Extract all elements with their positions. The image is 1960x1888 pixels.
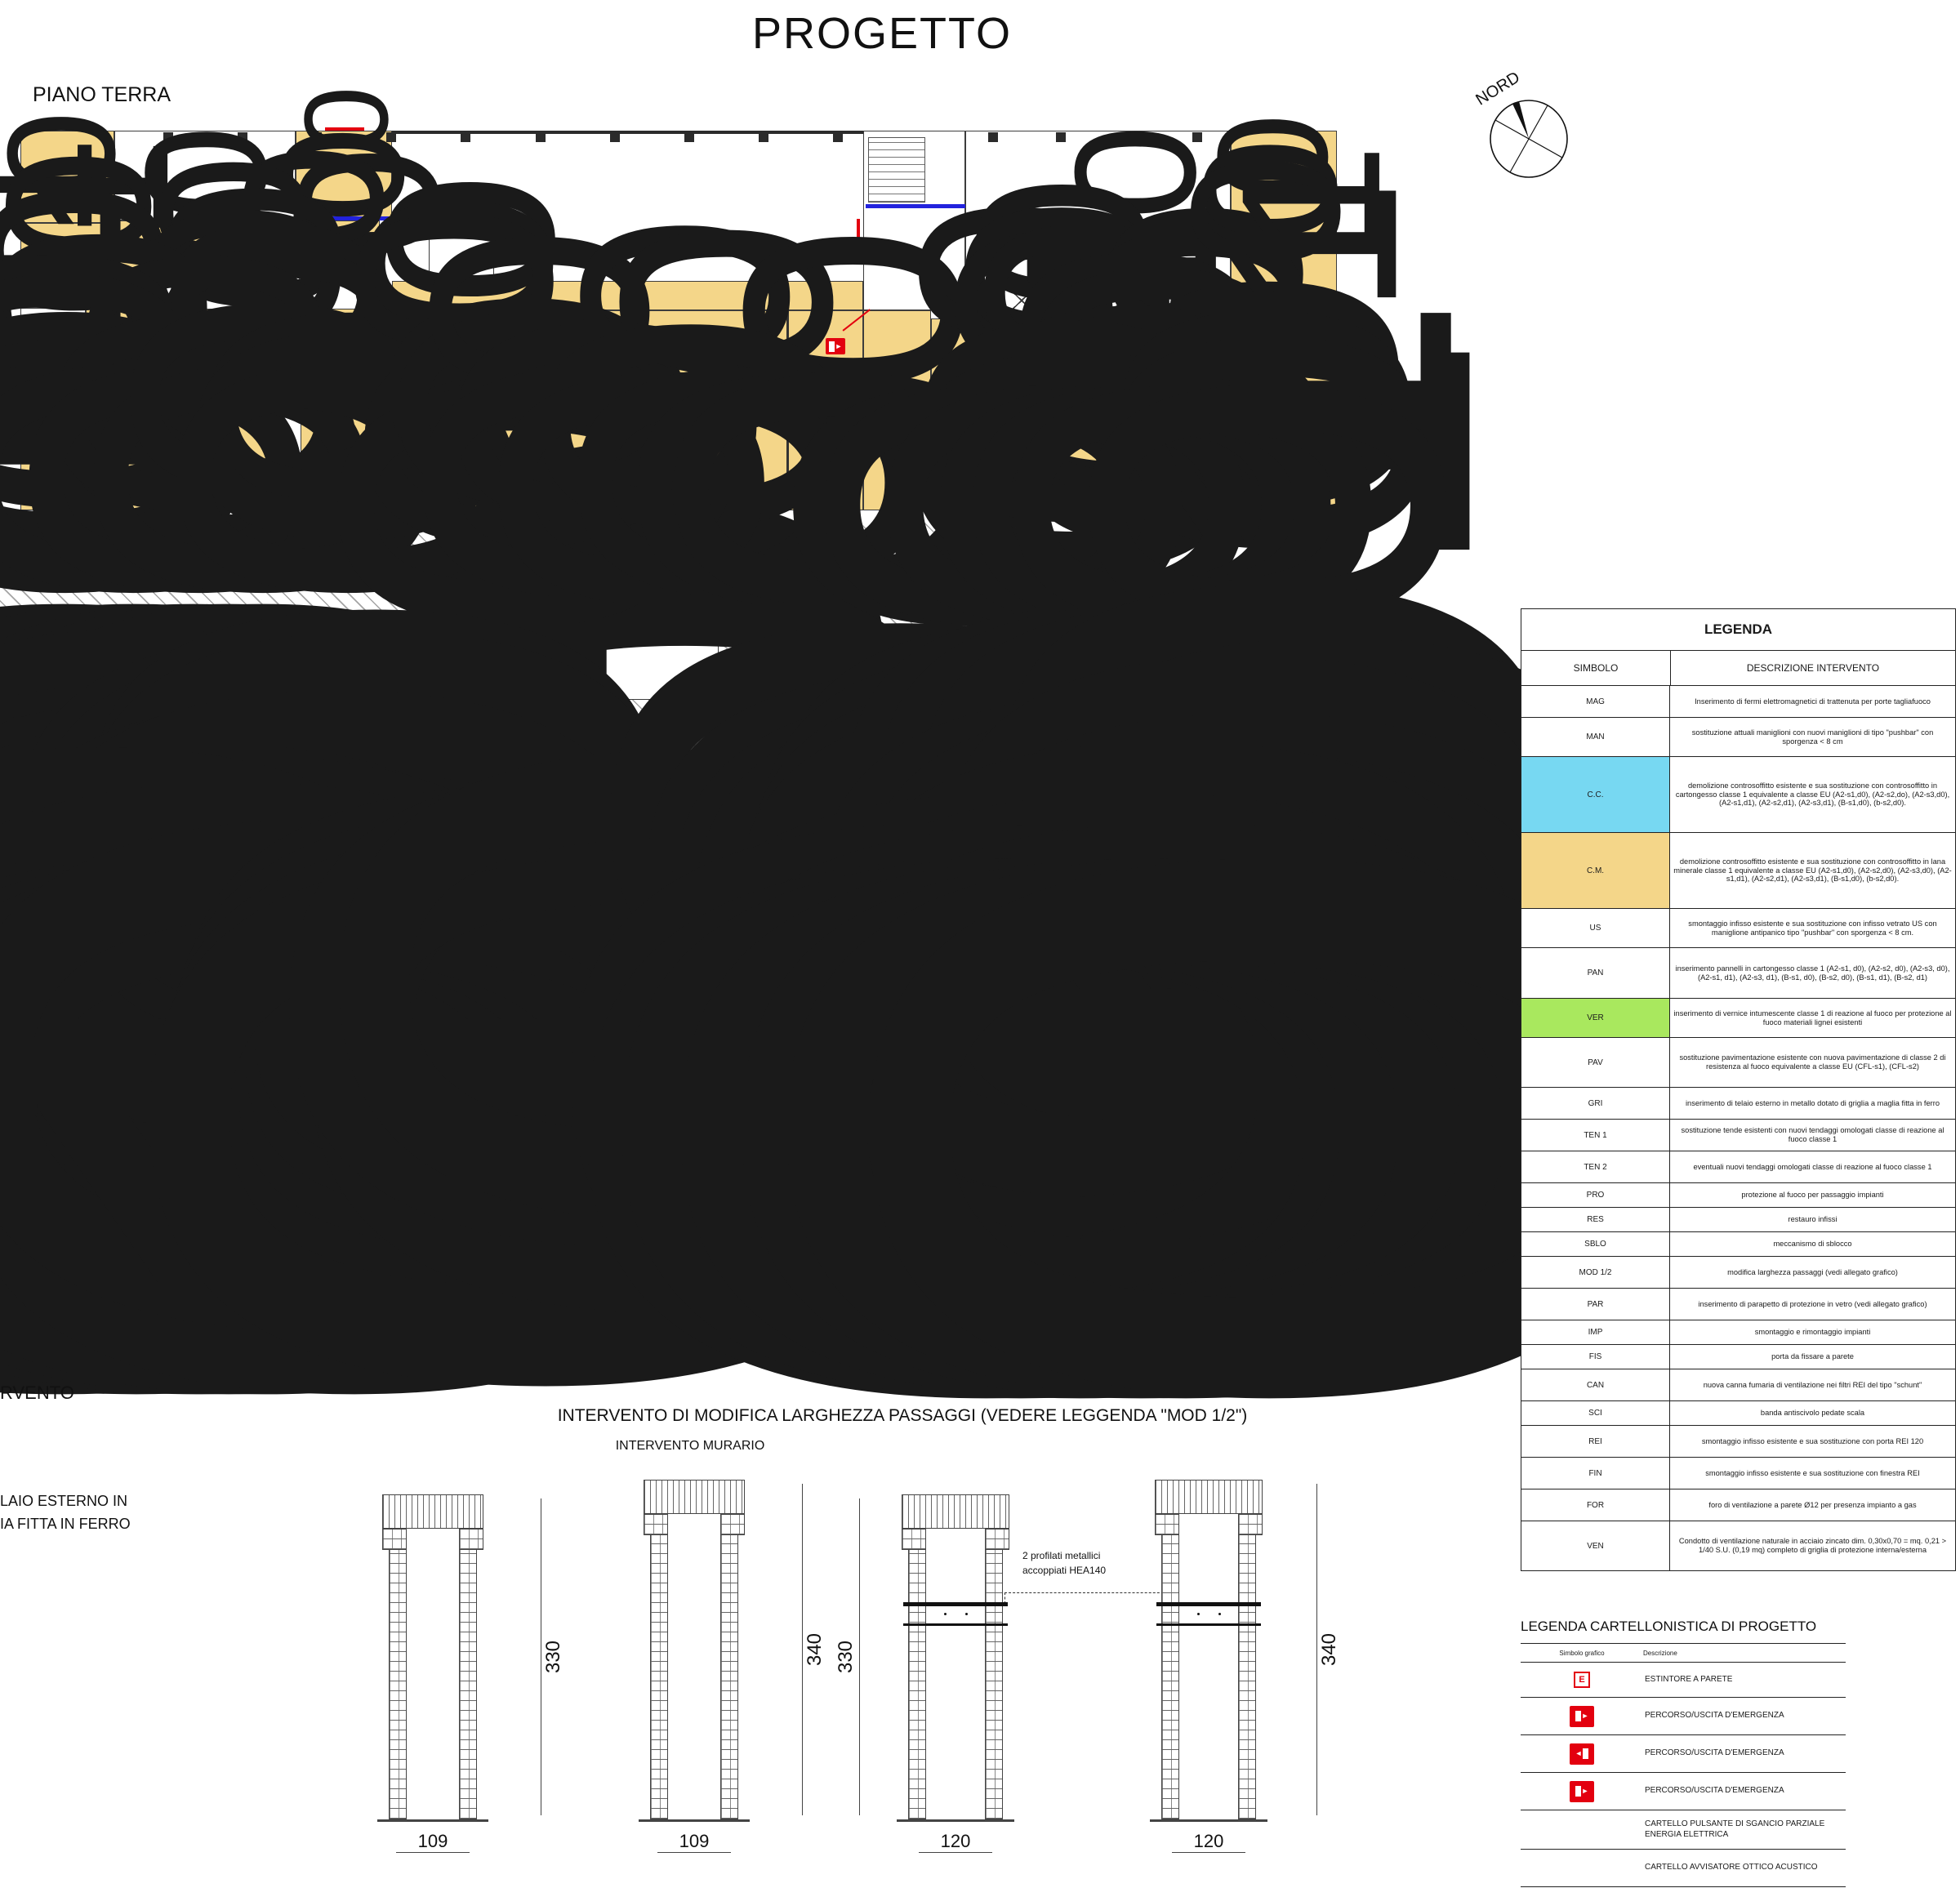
signage-col-simbolo: Simbolo grafico	[1521, 1650, 1643, 1657]
exit-door-glyph	[1583, 1748, 1588, 1759]
legend-symbol-cell: CAN	[1521, 1369, 1670, 1400]
legend-row: MANsostituzione attuali maniglioni con n…	[1521, 718, 1955, 757]
legend-title: LEGENDA	[1521, 609, 1955, 651]
signage-symbol-cell: ►	[1521, 1706, 1643, 1727]
legend-description-cell: sostituzione attuali maniglioni con nuov…	[1670, 718, 1955, 756]
signage-description-cell: PERCORSO/USCITA D'EMERGENZA	[1643, 1745, 1846, 1762]
beam-dot	[944, 1613, 947, 1615]
opening-width-dim: 109	[679, 1831, 710, 1852]
dim-line	[657, 1852, 731, 1853]
opening-width-dim: 120	[941, 1831, 971, 1852]
legend-description-cell: restauro infissi	[1670, 1208, 1955, 1231]
door-jamb	[908, 1527, 926, 1819]
legend-row: FINsmontaggio infisso esistente e sua so…	[1521, 1458, 1955, 1489]
legend-row: PROprotezione al fuoco per passaggio imp…	[1521, 1183, 1955, 1208]
legend-symbol-cell: PAV	[1521, 1038, 1670, 1087]
legend-symbol-cell: MAN	[1521, 718, 1670, 756]
legend-description-cell: inserimento pannelli in cartongesso clas…	[1670, 948, 1955, 998]
ground-line	[639, 1819, 750, 1822]
exit-arrow-glyph: ►	[1582, 1788, 1589, 1795]
signage-row: CARTELLO AVVISATORE OTTICO ACUSTICO	[1521, 1849, 1846, 1887]
hea140-beam	[903, 1602, 1008, 1606]
legend-row: FISporta da fissare a parete	[1521, 1345, 1955, 1369]
legend-row: FORforo di ventilazione a parete Ø12 per…	[1521, 1489, 1955, 1521]
legend-description-cell: eventuali nuovi tendaggi omologati class…	[1670, 1151, 1955, 1182]
legend-description-cell: smontaggio infisso esistente e sua sosti…	[1670, 1426, 1955, 1457]
signage-description-cell: PERCORSO/USCITA D'EMERGENZA	[1643, 1708, 1846, 1725]
legend-row: REIsmontaggio infisso esistente e sua so…	[1521, 1426, 1955, 1458]
legend-description-cell: sostituzione pavimentazione esistente co…	[1670, 1038, 1955, 1087]
opening-height-dim: 330	[542, 1641, 565, 1673]
door-arch	[644, 1480, 745, 1514]
dim-line	[919, 1852, 992, 1853]
height-dim-line	[859, 1498, 860, 1815]
ground-line	[897, 1819, 1014, 1822]
legend-col-simbolo: SIMBOLO	[1521, 651, 1671, 685]
height-dim-line	[541, 1498, 541, 1815]
legend-description-cell: smontaggio infisso esistente e sua sosti…	[1670, 909, 1955, 947]
opening-height-dim: 330	[835, 1641, 857, 1673]
legend-description-cell: demolizione controsoffitto esistente e s…	[1670, 757, 1955, 832]
legend-description-cell: inserimento di parapetto di protezione i…	[1670, 1289, 1955, 1320]
door-jamb	[985, 1527, 1003, 1819]
dim-line	[1172, 1852, 1245, 1853]
signage-description-cell: CARTELLO AVVISATORE OTTICO ACUSTICO	[1643, 1859, 1846, 1877]
signage-symbol-cell: ◄	[1521, 1743, 1643, 1765]
signage-row: ◄PERCORSO/USCITA D'EMERGENZA	[1521, 1734, 1846, 1772]
legend-col-descrizione: DESCRIZIONE INTERVENTO	[1671, 651, 1955, 685]
door-jamb	[650, 1512, 668, 1819]
arch-corbel	[720, 1514, 745, 1535]
signage-row: CARTELLO PULSANTE DI SGANCIO PARZIALE EN…	[1521, 1810, 1846, 1849]
legend-row: VENCondotto di ventilazione naturale in …	[1521, 1521, 1955, 1570]
clipped-left-text: IA FITTA IN FERRO	[0, 1516, 131, 1533]
signage-description-cell: ESTINTORE A PARETE	[1643, 1672, 1846, 1689]
door-jamb	[1238, 1512, 1256, 1819]
emergency-exit-icon: ◄	[1570, 1743, 1594, 1765]
legend-row: PAVsostituzione pavimentazione esistente…	[1521, 1038, 1955, 1088]
height-dim-line	[802, 1484, 803, 1815]
legend-symbol-cell: VER	[1521, 999, 1670, 1037]
legend-row: MAGInserimento di fermi elettromagnetici…	[1521, 686, 1955, 718]
door-jamb	[720, 1512, 738, 1819]
ground-line	[377, 1819, 488, 1822]
legend-header: SIMBOLO DESCRIZIONE INTERVENTO	[1521, 651, 1955, 686]
arch-corbel	[459, 1529, 483, 1550]
legend-symbol-cell: PRO	[1521, 1183, 1670, 1207]
opening-height-dim: 340	[804, 1633, 826, 1666]
signage-row: ►PERCORSO/USCITA D'EMERGENZA	[1521, 1697, 1846, 1734]
section-header: INTERVENTO DI MODIFICA LARGHEZZA PASSAGG…	[558, 1406, 1248, 1426]
legend-symbol-cell: C.C.	[1521, 757, 1670, 832]
signage-row: ►PERCORSO/USCITA D'EMERGENZA	[1521, 1772, 1846, 1810]
door-jamb	[389, 1527, 407, 1819]
legend-symbol-cell: TEN 2	[1521, 1151, 1670, 1182]
door-jamb	[1161, 1512, 1179, 1819]
signage-description-cell: PERCORSO/USCITA D'EMERGENZA	[1643, 1783, 1846, 1800]
legend-row: USsmontaggio infisso esistente e sua sos…	[1521, 909, 1955, 948]
hea140-beam	[903, 1623, 1008, 1626]
arch-corbel	[644, 1514, 668, 1535]
arch-corbel	[1155, 1514, 1179, 1535]
legend-symbol-cell: US	[1521, 909, 1670, 947]
hea140-beam	[1156, 1623, 1261, 1626]
opening-width-dim: 120	[1194, 1831, 1224, 1852]
legend-description-cell: modifica larghezza passaggi (vedi allega…	[1670, 1257, 1955, 1288]
beam-dot	[965, 1613, 968, 1615]
beam-dot	[1218, 1613, 1221, 1615]
legend-symbol-cell: REI	[1521, 1426, 1670, 1457]
section-subheader: INTERVENTO MURARIO	[616, 1439, 765, 1454]
signage-legend-title: LEGENDA CARTELLONISTICA DI PROGETTO	[1521, 1619, 1846, 1635]
legend-description-cell: foro di ventilazione a parete Ø12 per pr…	[1670, 1489, 1955, 1521]
architectural-drawing: PROGETTO PIANO TERRA PRIMO PIANO NORD 00…	[0, 0, 1960, 1888]
legend-row: RESrestauro infissi	[1521, 1208, 1955, 1232]
beam-dot	[1197, 1613, 1200, 1615]
legend-symbol-cell: GRI	[1521, 1088, 1670, 1119]
arch-corbel	[902, 1529, 926, 1550]
legend-description-cell: Inserimento di fermi elettromagnetici di…	[1670, 686, 1955, 717]
legend-symbol-cell: PAR	[1521, 1289, 1670, 1320]
legend-row: CANnuova canna fumaria di ventilazione n…	[1521, 1369, 1955, 1401]
exit-door-glyph	[1575, 1786, 1581, 1797]
legend-symbol-cell: MAG	[1521, 686, 1670, 717]
arch-corbel	[382, 1529, 407, 1550]
exit-arrow-glyph: ◄	[1575, 1750, 1583, 1757]
legend-description-cell: porta da fissare a parete	[1670, 1345, 1955, 1369]
legend-description-cell: nuova canna fumaria di ventilazione nei …	[1670, 1369, 1955, 1400]
dim-line	[396, 1852, 470, 1853]
legend-symbol-cell: FIS	[1521, 1345, 1670, 1369]
legend-symbol-cell: SCI	[1521, 1401, 1670, 1425]
emergency-exit-icon: ►	[1570, 1781, 1594, 1802]
clipped-left-text: RVENTO	[0, 1383, 74, 1404]
signage-description-cell: CARTELLO PULSANTE DI SGANCIO PARZIALE EN…	[1643, 1816, 1846, 1843]
legend-row: TEN 2eventuali nuovi tendaggi omologati …	[1521, 1151, 1955, 1183]
legend-row: SCIbanda antiscivolo pedate scala	[1521, 1401, 1955, 1426]
door-arch	[382, 1494, 483, 1529]
arch-corbel	[985, 1529, 1009, 1550]
legend-description-cell: inserimento di telaio esterno in metallo…	[1670, 1088, 1955, 1119]
signage-symbol-cell: ►	[1521, 1781, 1643, 1802]
legend-description-cell: smontaggio infisso esistente e sua sosti…	[1670, 1458, 1955, 1489]
legend-symbol-cell: VEN	[1521, 1521, 1670, 1570]
clipped-left-text: LAIO ESTERNO IN	[0, 1493, 127, 1510]
legend-row: PARinserimento di parapetto di protezion…	[1521, 1289, 1955, 1320]
legend-description-cell: inserimento di vernice intumescente clas…	[1670, 999, 1955, 1037]
legend-row: IMPsmontaggio e rimontaggio impianti	[1521, 1320, 1955, 1345]
legend-row: GRIinserimento di telaio esterno in meta…	[1521, 1088, 1955, 1120]
legend-symbol-cell: FOR	[1521, 1489, 1670, 1521]
opening-height-dim: 340	[1318, 1633, 1341, 1666]
legend-row: PANinserimento pannelli in cartongesso c…	[1521, 948, 1955, 999]
legend-description-cell: sostituzione tende esistenti con nuovi t…	[1670, 1120, 1955, 1151]
signage-legend: LEGENDA CARTELLONISTICA DI PROGETTO Simb…	[1521, 1619, 1846, 1887]
legend-symbol-cell: SBLO	[1521, 1232, 1670, 1256]
legend-symbol-cell: C.M.	[1521, 833, 1670, 908]
signage-col-descrizione: Descrizione	[1643, 1650, 1677, 1657]
legend-symbol-cell: TEN 1	[1521, 1120, 1670, 1151]
exit-arrow-glyph: ►	[1582, 1712, 1589, 1720]
legend-row: TEN 1sostituzione tende esistenti con nu…	[1521, 1120, 1955, 1151]
door-jamb	[459, 1527, 477, 1819]
legend-description-cell: protezione al fuoco per passaggio impian…	[1670, 1183, 1955, 1207]
legend-row: C.M.demolizione controsoffitto esistente…	[1521, 833, 1955, 909]
beam-leader-dashed	[1004, 1592, 1176, 1593]
hea140-beam	[1156, 1602, 1261, 1606]
signage-symbol-cell: E	[1521, 1672, 1643, 1688]
arch-corbel	[1238, 1514, 1263, 1535]
height-dim-line	[1316, 1484, 1317, 1815]
beam-annotation: 2 profilati metalliciaccoppiati HEA140	[1022, 1548, 1106, 1578]
emergency-exit-icon: ►	[1570, 1706, 1594, 1727]
legend-description-cell: banda antiscivolo pedate scala	[1670, 1401, 1955, 1425]
legend-row: SBLOmeccanismo di sblocco	[1521, 1232, 1955, 1257]
extinguisher-icon: E	[1574, 1672, 1590, 1688]
legend-row: MOD 1/2modifica larghezza passaggi (vedi…	[1521, 1257, 1955, 1289]
legend-symbol-cell: FIN	[1521, 1458, 1670, 1489]
door-arch	[1155, 1480, 1263, 1514]
legend-row: C.C.demolizione controsoffitto esistente…	[1521, 757, 1955, 833]
signage-row: EESTINTORE A PARETE	[1521, 1662, 1846, 1697]
legend-table: LEGENDA SIMBOLO DESCRIZIONE INTERVENTO M…	[1521, 608, 1956, 1571]
legend-description-cell: demolizione controsoffitto esistente e s…	[1670, 833, 1955, 908]
legend-description-cell: smontaggio e rimontaggio impianti	[1670, 1320, 1955, 1344]
legend-description-cell: Condotto di ventilazione naturale in acc…	[1670, 1521, 1955, 1570]
legend-symbol-cell: RES	[1521, 1208, 1670, 1231]
legend-symbol-cell: MOD 1/2	[1521, 1257, 1670, 1288]
exit-door-glyph	[1575, 1711, 1581, 1721]
ground-line	[1150, 1819, 1267, 1822]
legend-symbol-cell: PAN	[1521, 948, 1670, 998]
opening-width-dim: 109	[418, 1831, 448, 1852]
legend-description-cell: meccanismo di sblocco	[1670, 1232, 1955, 1256]
legend-row: VERinserimento di vernice intumescente c…	[1521, 999, 1955, 1038]
legend-symbol-cell: IMP	[1521, 1320, 1670, 1344]
signage-header: Simbolo grafico Descrizione	[1521, 1643, 1846, 1662]
door-arch	[902, 1494, 1009, 1529]
